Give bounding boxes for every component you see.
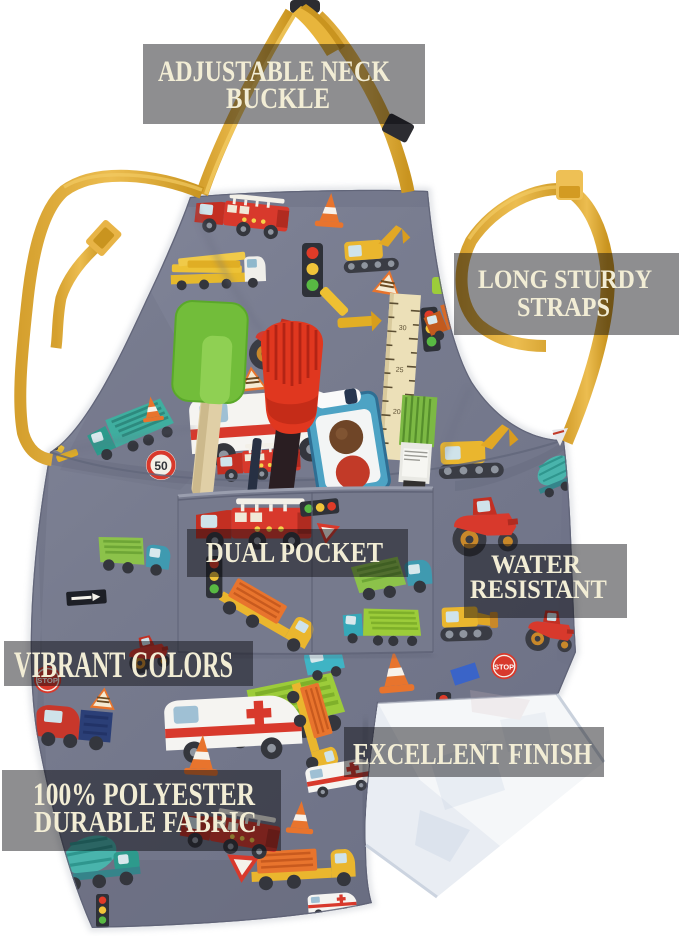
svg-text:25: 25	[396, 367, 404, 375]
svg-text:20: 20	[393, 409, 401, 417]
svg-text:30: 30	[398, 325, 406, 333]
